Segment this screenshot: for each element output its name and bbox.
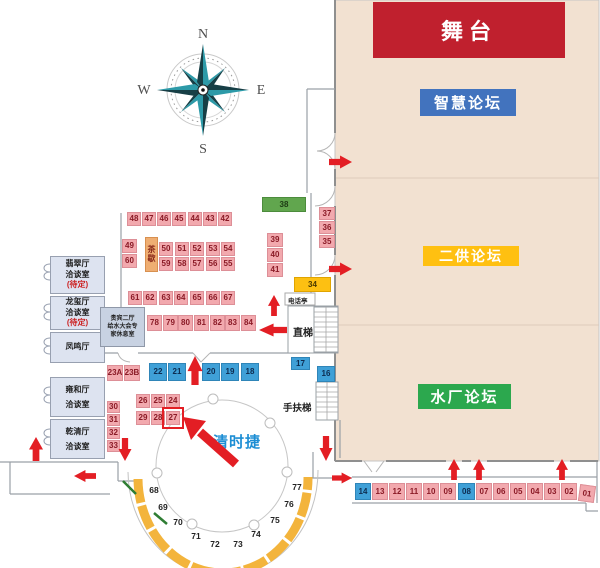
right-arrow (329, 156, 352, 169)
up-arrow (268, 295, 280, 316)
left-arrow (74, 470, 96, 482)
down-arrow (119, 438, 132, 461)
up-arrow (188, 356, 203, 385)
floorplan: N E S W 48474645444342496050515253545958… (0, 0, 600, 568)
up-arrow (448, 459, 460, 480)
right-arrow (329, 263, 352, 276)
up-arrow (556, 459, 568, 480)
up-arrow (473, 459, 485, 480)
up-arrow (29, 437, 43, 461)
arrow-layer (0, 0, 600, 568)
left-arrow (259, 324, 287, 337)
right-arrow (332, 473, 352, 484)
callout-arrow (183, 417, 236, 464)
down-arrow (320, 436, 333, 461)
